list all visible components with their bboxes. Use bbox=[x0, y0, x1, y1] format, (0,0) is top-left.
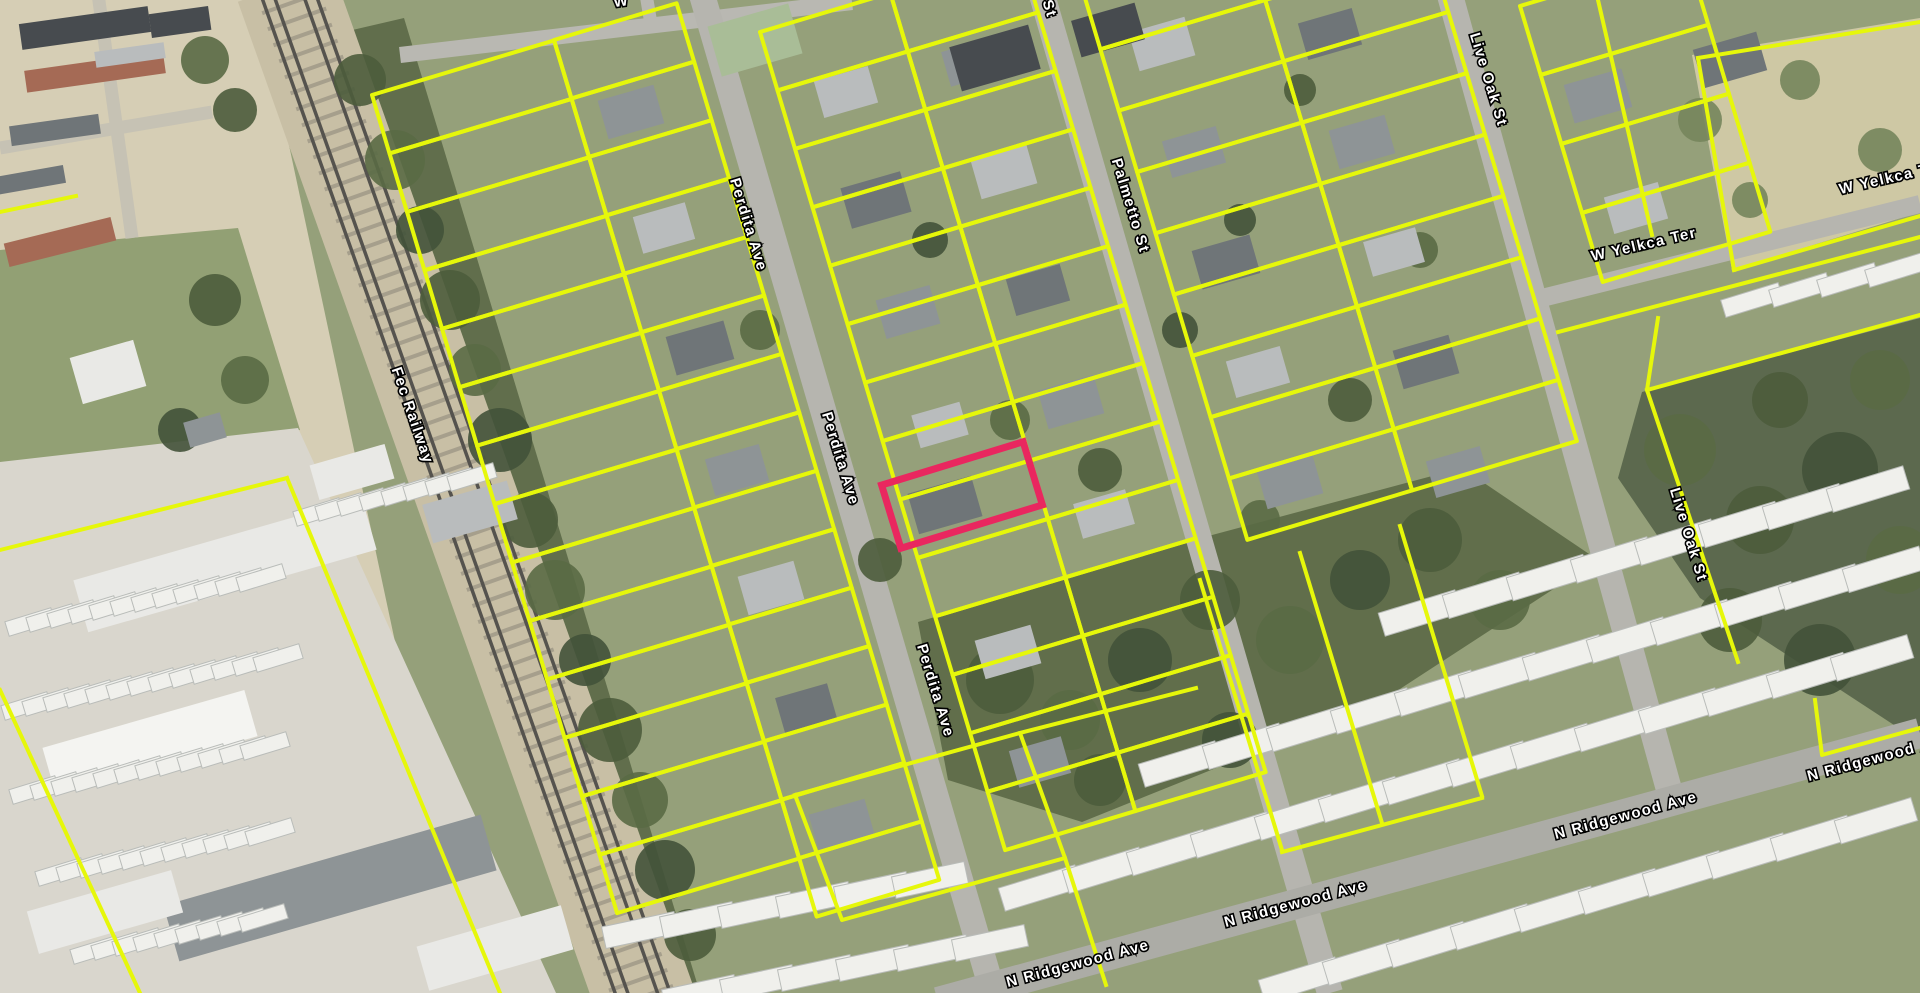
building-roof bbox=[598, 85, 665, 139]
tree-canopy-blob bbox=[396, 206, 444, 254]
tree-canopy-blob bbox=[1752, 372, 1808, 428]
tree-canopy-blob bbox=[334, 54, 386, 106]
tree-canopy-blob bbox=[1780, 60, 1820, 100]
tree-canopy-blob bbox=[1850, 350, 1910, 410]
building-roof bbox=[666, 321, 735, 376]
trailer-or-boat bbox=[1834, 798, 1918, 844]
tree-canopy-blob bbox=[1644, 414, 1716, 486]
parcel-boundary[interactable] bbox=[1302, 73, 1485, 184]
tree-canopy-blob bbox=[1678, 98, 1722, 142]
tree-canopy-blob bbox=[1078, 448, 1122, 492]
tree-canopy-blob bbox=[1328, 378, 1372, 422]
building-roof bbox=[814, 66, 878, 118]
tree-canopy-blob bbox=[181, 36, 229, 84]
map-canvas[interactable]: Fec RailwayPerdita AvePerdita AvePerdita… bbox=[0, 0, 1920, 993]
tree-canopy-blob bbox=[1256, 606, 1324, 674]
tree-canopy-blob bbox=[365, 130, 425, 190]
tree-canopy-blob bbox=[858, 538, 902, 582]
building-roof bbox=[971, 145, 1038, 199]
tree-canopy-blob bbox=[449, 344, 501, 396]
tree-canopy-blob bbox=[221, 356, 269, 404]
building-roof bbox=[775, 683, 837, 732]
tree-canopy-blob bbox=[1858, 128, 1902, 172]
tree-canopy-blob bbox=[1398, 508, 1462, 572]
street-label: W bbox=[612, 0, 630, 11]
building-roof bbox=[1226, 346, 1290, 398]
tree-canopy-blob bbox=[559, 634, 611, 686]
building-roof bbox=[1257, 455, 1324, 509]
tree-canopy-blob bbox=[213, 88, 257, 132]
building-roof bbox=[1329, 115, 1396, 169]
trailer-or-boat bbox=[1865, 253, 1920, 288]
map-viewport[interactable]: Fec RailwayPerdita AvePerdita AvePerdita… bbox=[0, 0, 1920, 993]
building-roof bbox=[738, 561, 805, 615]
tree-canopy-blob bbox=[525, 560, 585, 620]
tree-canopy-blob bbox=[1180, 570, 1240, 630]
tree-canopy-blob bbox=[1330, 550, 1390, 610]
building-roof bbox=[1393, 335, 1460, 389]
tree-canopy-blob bbox=[189, 274, 241, 326]
building-roof bbox=[633, 202, 695, 253]
road bbox=[645, 0, 652, 30]
building-roof bbox=[1192, 235, 1261, 290]
building-roof bbox=[1162, 126, 1226, 178]
parcel-boundary[interactable] bbox=[960, 188, 1108, 285]
